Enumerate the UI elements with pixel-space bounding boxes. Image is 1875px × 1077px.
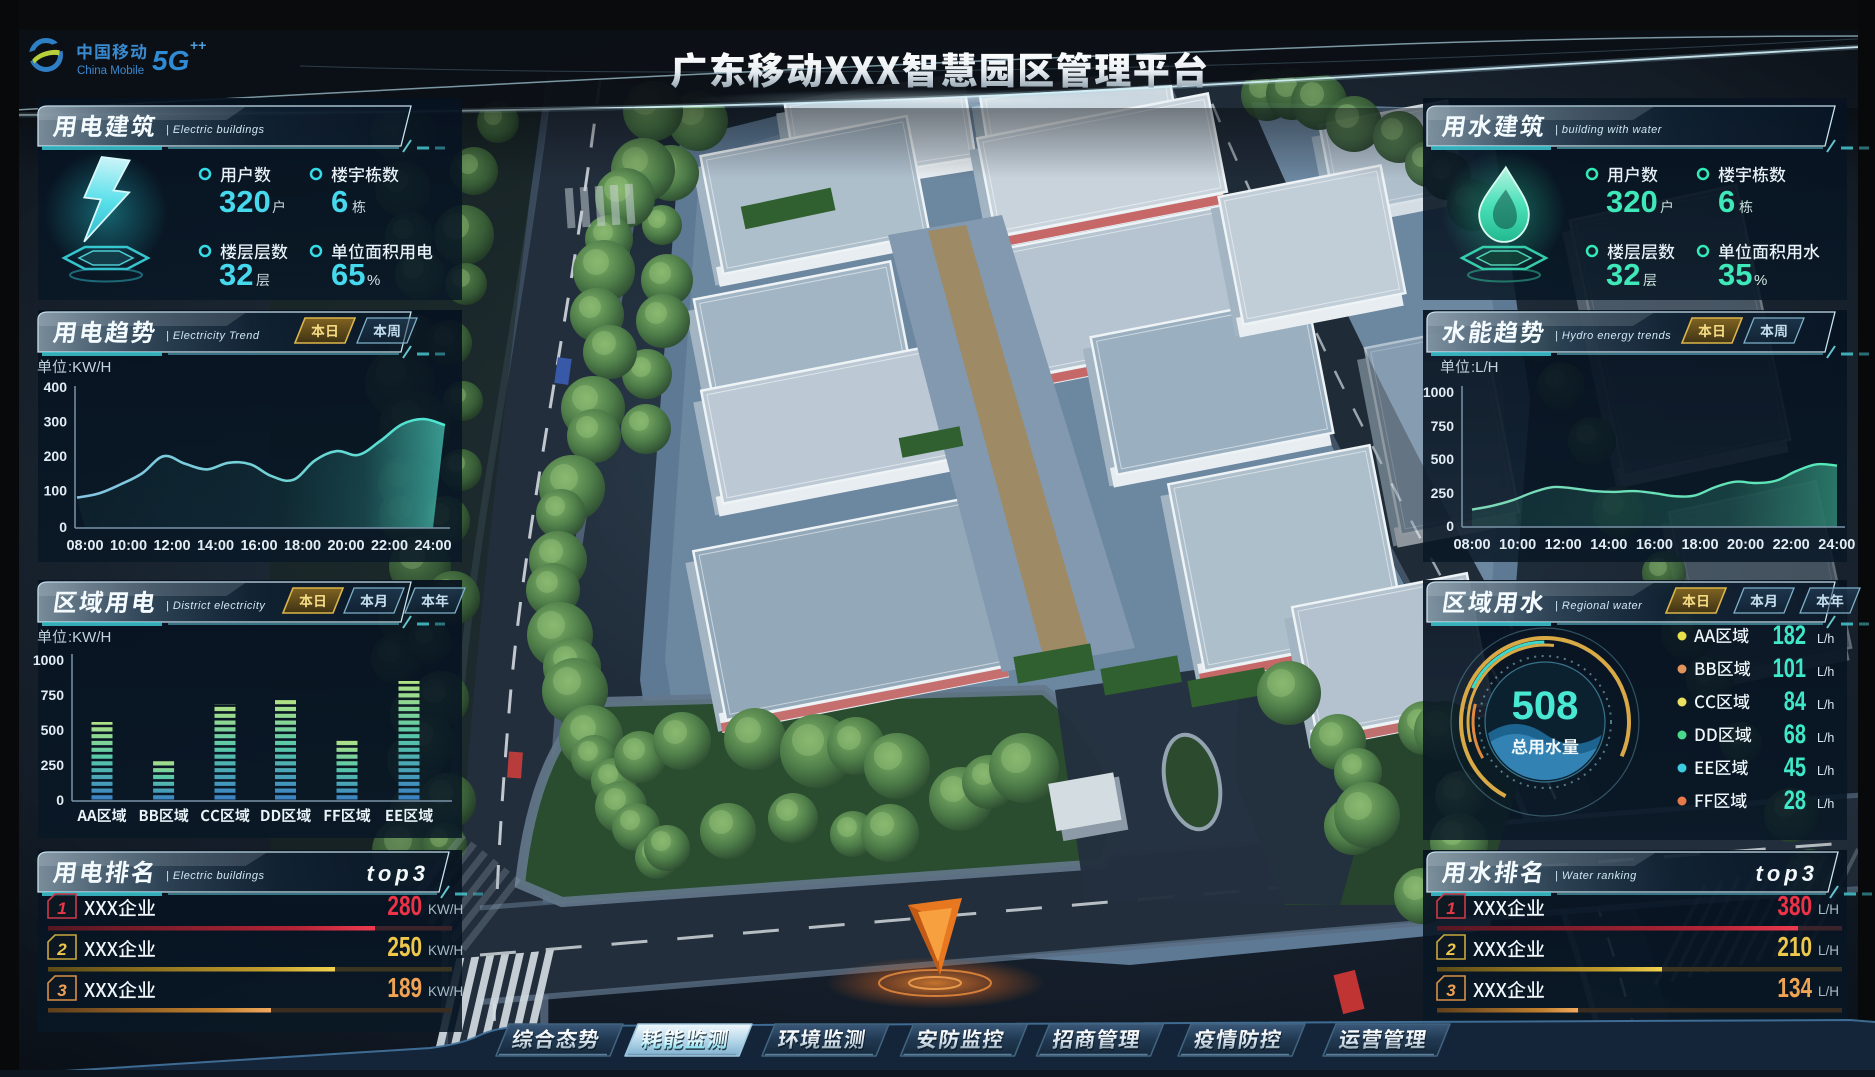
svg-text:L/h: L/h [1817,665,1834,679]
svg-text:08:00: 08:00 [66,538,103,554]
svg-text:0: 0 [1446,518,1454,534]
svg-text:100: 100 [44,483,68,499]
svg-text:84: 84 [1784,686,1807,717]
svg-text:L/h: L/h [1817,764,1834,778]
svg-text:++: ++ [190,37,206,53]
svg-text:L/h: L/h [1817,797,1834,811]
svg-text::L/H: :L/H [1471,359,1499,376]
svg-text:6: 6 [331,184,348,219]
svg-text:65: 65 [331,257,365,292]
svg-text:10:00: 10:00 [110,538,147,554]
svg-text:top3: top3 [1756,861,1818,886]
svg-text:L/H: L/H [1818,902,1839,917]
svg-text:28: 28 [1784,785,1806,816]
svg-text:| Electric buildings: | Electric buildings [166,870,264,882]
svg-text:L/h: L/h [1817,632,1834,646]
svg-text:45: 45 [1784,752,1806,783]
svg-text:10:00: 10:00 [1499,537,1536,553]
svg-text:250: 250 [41,757,65,773]
svg-text:101: 101 [1773,653,1806,684]
svg-text:134: 134 [1777,973,1812,1004]
svg-text:68: 68 [1784,719,1806,750]
svg-text:%: % [1754,272,1767,289]
svg-text:2: 2 [1445,940,1456,959]
svg-text:| building with water: | building with water [1555,124,1663,136]
svg-text:1000: 1000 [1423,384,1454,400]
svg-text:250: 250 [387,932,422,963]
svg-text:320: 320 [219,184,271,219]
svg-text:| Electricity Trend: | Electricity Trend [166,330,260,342]
svg-text:KW/H: KW/H [428,902,463,917]
svg-text:08:00: 08:00 [1453,537,1490,553]
svg-text:12:00: 12:00 [153,538,190,554]
svg-text:380: 380 [1777,891,1812,922]
svg-text:35: 35 [1718,257,1752,292]
svg-text:KW/H: KW/H [428,943,463,958]
svg-text:750: 750 [41,687,65,703]
svg-text:20:00: 20:00 [1727,537,1764,553]
svg-text:KW/H: KW/H [428,984,463,999]
svg-text:0: 0 [59,519,67,535]
svg-text:0: 0 [56,792,64,808]
svg-text:182: 182 [1773,620,1806,651]
svg-text:3: 3 [1446,981,1456,1000]
svg-text:14:00: 14:00 [1590,537,1627,553]
svg-text:400: 400 [44,379,68,395]
svg-text:22:00: 22:00 [371,538,408,554]
svg-text:508: 508 [1512,684,1579,728]
svg-text:189: 189 [387,973,422,1004]
svg-text:L/H: L/H [1818,984,1839,999]
svg-text:1: 1 [57,899,66,918]
svg-text:1000: 1000 [33,652,64,668]
svg-text:| Water ranking: | Water ranking [1555,870,1637,882]
svg-text:1: 1 [1446,899,1455,918]
svg-text:210: 210 [1777,932,1812,963]
svg-text:280: 280 [387,891,422,922]
svg-text:2: 2 [56,940,67,959]
svg-text:20:00: 20:00 [327,538,364,554]
svg-text:750: 750 [1431,418,1455,434]
svg-text:24:00: 24:00 [1818,537,1855,553]
svg-text:14:00: 14:00 [197,538,234,554]
svg-text:| Electric buildings: | Electric buildings [166,124,264,136]
svg-text::KW/H: :KW/H [68,359,111,376]
svg-text:500: 500 [41,722,65,738]
svg-text:| Regional water: | Regional water [1555,600,1643,612]
svg-text:32: 32 [219,257,253,292]
svg-text:3: 3 [57,981,67,1000]
svg-text:200: 200 [44,448,68,464]
svg-text::KW/H: :KW/H [68,629,111,646]
svg-text:32: 32 [1606,257,1640,292]
svg-text:L/h: L/h [1817,698,1834,712]
svg-text:L/h: L/h [1817,731,1834,745]
svg-text:16:00: 16:00 [240,538,277,554]
svg-text:5G: 5G [152,45,189,76]
svg-text:300: 300 [44,414,68,430]
svg-text:| Hydro energy trends: | Hydro energy trends [1555,330,1671,342]
svg-text:500: 500 [1431,451,1455,467]
svg-text:top3: top3 [367,861,429,886]
svg-text:%: % [367,272,380,289]
svg-text:China Mobile: China Mobile [77,65,144,77]
svg-text:250: 250 [1431,485,1455,501]
svg-text:18:00: 18:00 [1681,537,1718,553]
svg-text:6: 6 [1718,184,1735,219]
svg-text:| District electricity: | District electricity [166,600,266,612]
svg-text:24:00: 24:00 [414,538,451,554]
svg-text:16:00: 16:00 [1636,537,1673,553]
svg-text:22:00: 22:00 [1773,537,1810,553]
svg-text:320: 320 [1606,184,1658,219]
svg-text:18:00: 18:00 [284,538,321,554]
svg-text:12:00: 12:00 [1545,537,1582,553]
svg-text:L/H: L/H [1818,943,1839,958]
